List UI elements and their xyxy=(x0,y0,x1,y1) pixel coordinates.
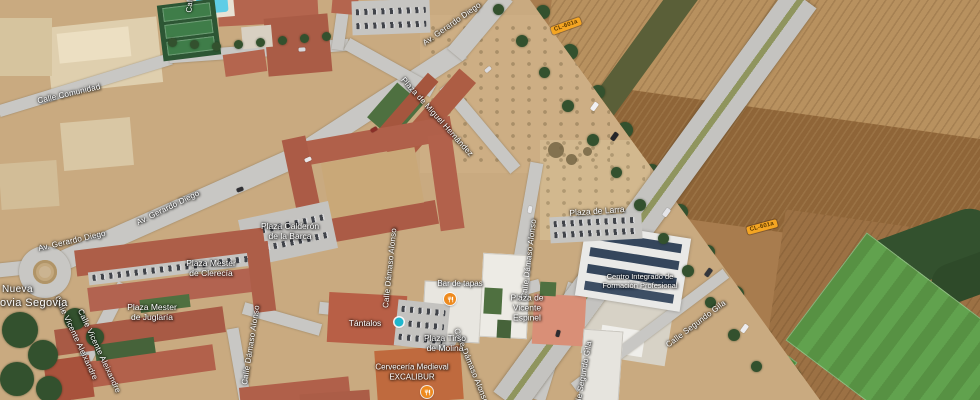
street-label-calle-comunidad: Calle Comunidad xyxy=(37,82,102,106)
street-label-calle-segundo-gila: Calle Segundo Gila xyxy=(664,298,728,349)
district-label-line2: ovia Segovia xyxy=(0,297,68,310)
plaza-label-line: Espinel xyxy=(510,313,543,323)
fork-knife-glyph xyxy=(447,296,454,303)
poi-label-centro-integrado[interactable]: Centro Integrado de Formación Profesiona… xyxy=(602,272,677,290)
plaza-label-calderon[interactable]: Plaza Calderón de la Barca xyxy=(261,221,319,241)
street-label-av-gerardo-diego: Av. Gerardo Diego xyxy=(37,229,106,254)
labels-layer: Calle Comunidad Av. Gerardo Diego Av. Ge… xyxy=(0,0,980,400)
street-label-av-gerardo-diego: Av. Gerardo Diego xyxy=(135,189,201,228)
poi-label-tantalos[interactable]: Tántalos xyxy=(349,318,382,328)
poi-label-line: Cervecería Medieval xyxy=(375,362,448,372)
street-label-av-gerardo-diego: Av. Gerardo Diego xyxy=(421,0,483,47)
plaza-label-line: de Juglaría xyxy=(127,312,177,322)
poi-label-line: Centro Integrado de xyxy=(602,272,677,281)
plaza-label-line: de la Barca xyxy=(261,231,319,241)
plaza-label-line: Plaza Tirso xyxy=(424,333,466,343)
district-label-line1: Nueva xyxy=(2,284,33,296)
plaza-label-mester-juglaria[interactable]: Plaza Mester de Juglaría xyxy=(127,302,177,322)
road-badge-cl601a: CL-601a xyxy=(746,219,778,235)
street-label-calle-damaso-alonso: Calle Dámaso Alonso xyxy=(381,228,399,309)
fork-knife-glyph xyxy=(424,389,431,396)
street-label-calle-damaso-alonso: Calle Dámaso Alonso xyxy=(240,305,262,386)
plaza-label-mester-clerecia[interactable]: Plaza Mester de Clerecía xyxy=(186,258,236,278)
plaza-label-line: Vicente xyxy=(510,303,543,313)
street-label-clipped: Calle xyxy=(184,0,195,13)
poi-label-bar-de-tapas[interactable]: Bar de tapas xyxy=(437,279,482,289)
plaza-label-line: de Clerecía xyxy=(186,268,236,278)
poi-label-line: Formación Profesional xyxy=(602,281,677,290)
plaza-label-line: Plaza Mester xyxy=(127,302,177,312)
satellite-map[interactable]: Calle Comunidad Av. Gerardo Diego Av. Ge… xyxy=(0,0,980,400)
street-label-calle-damaso-alonso: Calle Dámaso Alonso xyxy=(519,219,538,300)
poi-label-line: EXCALIBUR xyxy=(375,372,448,382)
plaza-label-line: Plaza Calderón xyxy=(261,221,319,231)
place-dot-icon[interactable] xyxy=(395,318,404,327)
street-label-calle-segundo-gila: Calle Segundo Gila xyxy=(572,340,594,400)
plaza-label-vicente-espinel[interactable]: Plaza de Vicente Espinel xyxy=(510,293,543,324)
plaza-label-line: Plaza de xyxy=(510,293,543,303)
plaza-label-tirso-de-molina[interactable]: Plaza Tirso de Molina xyxy=(424,333,466,353)
plaza-label-line: de Molina xyxy=(424,343,466,353)
restaurant-pin-icon[interactable] xyxy=(421,386,433,398)
road-badge-cl601a: CL-601a xyxy=(550,17,582,35)
street-label-plaza-miguel-hernandez: Plaza de Miguel Hernández xyxy=(399,75,475,158)
plaza-label-line: Plaza Mester xyxy=(186,258,236,268)
poi-label-cerveceria-excalibur[interactable]: Cervecería Medieval EXCALIBUR xyxy=(375,362,448,381)
plaza-label-larra[interactable]: Plaza de Larra xyxy=(569,204,625,218)
restaurant-pin-icon[interactable] xyxy=(444,293,456,305)
